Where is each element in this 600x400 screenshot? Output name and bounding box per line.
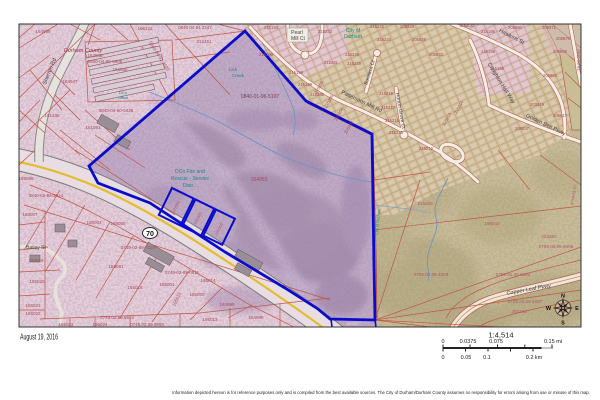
svg-text:0840-04-80-5905: 0840-04-80-5905 (88, 59, 123, 64)
svg-text:S: S (561, 321, 565, 327)
svg-text:0759.01.19.4167: 0759.01.19.4167 (508, 299, 543, 304)
svg-text:215210: 215210 (419, 146, 434, 151)
svg-text:165021: 165021 (25, 303, 41, 308)
svg-text:161061: 161061 (85, 125, 101, 130)
svg-text:203343: 203343 (511, 309, 527, 314)
svg-text:165096: 165096 (18, 176, 34, 181)
svg-text:165091: 165091 (108, 264, 124, 269)
svg-text:163007: 163007 (22, 212, 38, 217)
svg-text:0759.01.09.4529: 0759.01.09.4529 (414, 272, 449, 277)
svg-text:205829: 205829 (412, 37, 427, 42)
svg-text:Creek: Creek (232, 73, 245, 78)
svg-text:161248: 161248 (44, 113, 60, 118)
svg-text:215215: 215215 (389, 130, 404, 135)
svg-text:Lick: Lick (229, 67, 238, 72)
svg-text:0759.01.09.8660: 0759.01.09.8660 (496, 272, 531, 277)
svg-text:212451: 212451 (196, 39, 212, 44)
svg-text:206817: 206817 (553, 113, 568, 118)
svg-text:0.05: 0.05 (461, 355, 472, 361)
svg-text:0759.04.09.9408: 0759.04.09.9408 (539, 244, 574, 249)
svg-text:165016: 165016 (127, 285, 143, 290)
svg-text:205882: 205882 (543, 73, 558, 78)
svg-text:196122: 196122 (137, 26, 153, 31)
svg-text:165000: 165000 (110, 221, 126, 226)
svg-text:215198: 215198 (289, 70, 304, 75)
svg-text:165002: 165002 (189, 292, 205, 297)
svg-text:Office: Office (118, 95, 129, 100)
svg-text:DCo Fire and: DCo Fire and (175, 169, 205, 175)
svg-text:Rescue - Service: Rescue - Service (171, 176, 209, 182)
svg-text:0.2 km: 0.2 km (526, 355, 543, 361)
svg-text:215228: 215228 (345, 52, 360, 57)
svg-text:E: E (575, 306, 579, 312)
svg-text:165020: 165020 (29, 279, 45, 284)
svg-text:0749-02-69-7124: 0749-02-69-7124 (121, 245, 156, 250)
svg-text:215199: 215199 (298, 82, 313, 87)
svg-text:164998: 164998 (248, 315, 264, 320)
svg-text:205828: 205828 (400, 24, 415, 29)
svg-text:205832: 205832 (429, 52, 444, 57)
svg-text:165013: 165013 (202, 317, 218, 322)
svg-text:205871: 205871 (542, 25, 557, 30)
svg-text:0840-01-96-5107: 0840-01-96-5107 (241, 94, 280, 100)
svg-text:0749.02.89.0968: 0749.02.89.0968 (130, 322, 164, 327)
svg-text:203819: 203819 (530, 102, 545, 107)
svg-text:164947: 164947 (62, 79, 78, 84)
svg-text:164938: 164938 (87, 53, 103, 58)
svg-text:165001: 165001 (159, 282, 175, 287)
svg-text:215233: 215233 (318, 29, 333, 34)
svg-text:0749.02.89.6914: 0749.02.89.6914 (100, 315, 134, 320)
svg-text:0.0375: 0.0375 (460, 339, 477, 345)
svg-text:215231: 215231 (324, 60, 339, 65)
svg-text:Bailey St: Bailey St (26, 245, 46, 251)
svg-text:Information depicted hereon is: Information depicted hereon is for refer… (172, 390, 590, 395)
svg-text:165024: 165024 (92, 322, 108, 327)
svg-text:0840 04 91 2247: 0840 04 91 2247 (178, 25, 212, 30)
svg-text:0749-02-89-0511: 0749-02-89-0511 (165, 270, 200, 275)
svg-text:Distr...: Distr... (183, 183, 197, 189)
svg-text:165003: 165003 (86, 220, 102, 225)
svg-text:199244: 199244 (484, 221, 500, 226)
svg-text:215217: 215217 (381, 105, 396, 110)
svg-text:165007: 165007 (346, 321, 360, 326)
svg-text:215198: 215198 (481, 49, 496, 54)
svg-text:Mill Ct: Mill Ct (291, 36, 305, 42)
svg-text:165022: 165022 (25, 311, 41, 316)
svg-text:165014: 165014 (200, 278, 216, 283)
svg-text:164909: 164909 (35, 29, 51, 34)
svg-text:0.15 mi: 0.15 mi (544, 339, 562, 345)
svg-text:205837: 205837 (515, 126, 530, 131)
svg-text:215196: 215196 (259, 52, 274, 57)
svg-text:0840-04-60-5438: 0840-04-60-5438 (99, 108, 134, 113)
svg-text:August 19, 2016: August 19, 2016 (20, 333, 58, 342)
svg-text:215194: 215194 (264, 25, 279, 30)
svg-text:N: N (561, 294, 565, 300)
svg-text:215195: 215195 (481, 29, 496, 34)
svg-text:W: W (546, 306, 552, 312)
svg-text:205870: 205870 (556, 36, 571, 41)
svg-text:203360: 203360 (541, 234, 557, 239)
svg-text:165019: 165019 (28, 258, 44, 263)
svg-text:164930: 164930 (112, 67, 128, 72)
svg-text:164953: 164953 (251, 177, 268, 183)
svg-text:215209: 215209 (417, 201, 433, 206)
svg-text:215218: 215218 (379, 91, 394, 96)
svg-text:Durham: Durham (344, 34, 362, 40)
svg-text:0: 0 (441, 339, 444, 345)
svg-text:215196: 215196 (490, 66, 505, 71)
svg-text:70: 70 (146, 231, 154, 238)
svg-text:0840-02-86-2014: 0840-02-86-2014 (29, 193, 64, 198)
svg-text:0.1: 0.1 (483, 355, 491, 361)
svg-text:0.075: 0.075 (489, 339, 503, 345)
svg-text:0: 0 (441, 355, 444, 361)
svg-text:164999: 164999 (219, 302, 235, 307)
svg-text:215225: 215225 (370, 24, 385, 29)
svg-text:205880: 205880 (508, 25, 523, 30)
svg-text:215224: 215224 (377, 37, 392, 42)
svg-text:215229: 215229 (347, 61, 362, 66)
svg-text:215216: 215216 (385, 118, 400, 123)
svg-text:205869: 205869 (553, 49, 568, 54)
svg-text:165023: 165023 (58, 322, 74, 327)
